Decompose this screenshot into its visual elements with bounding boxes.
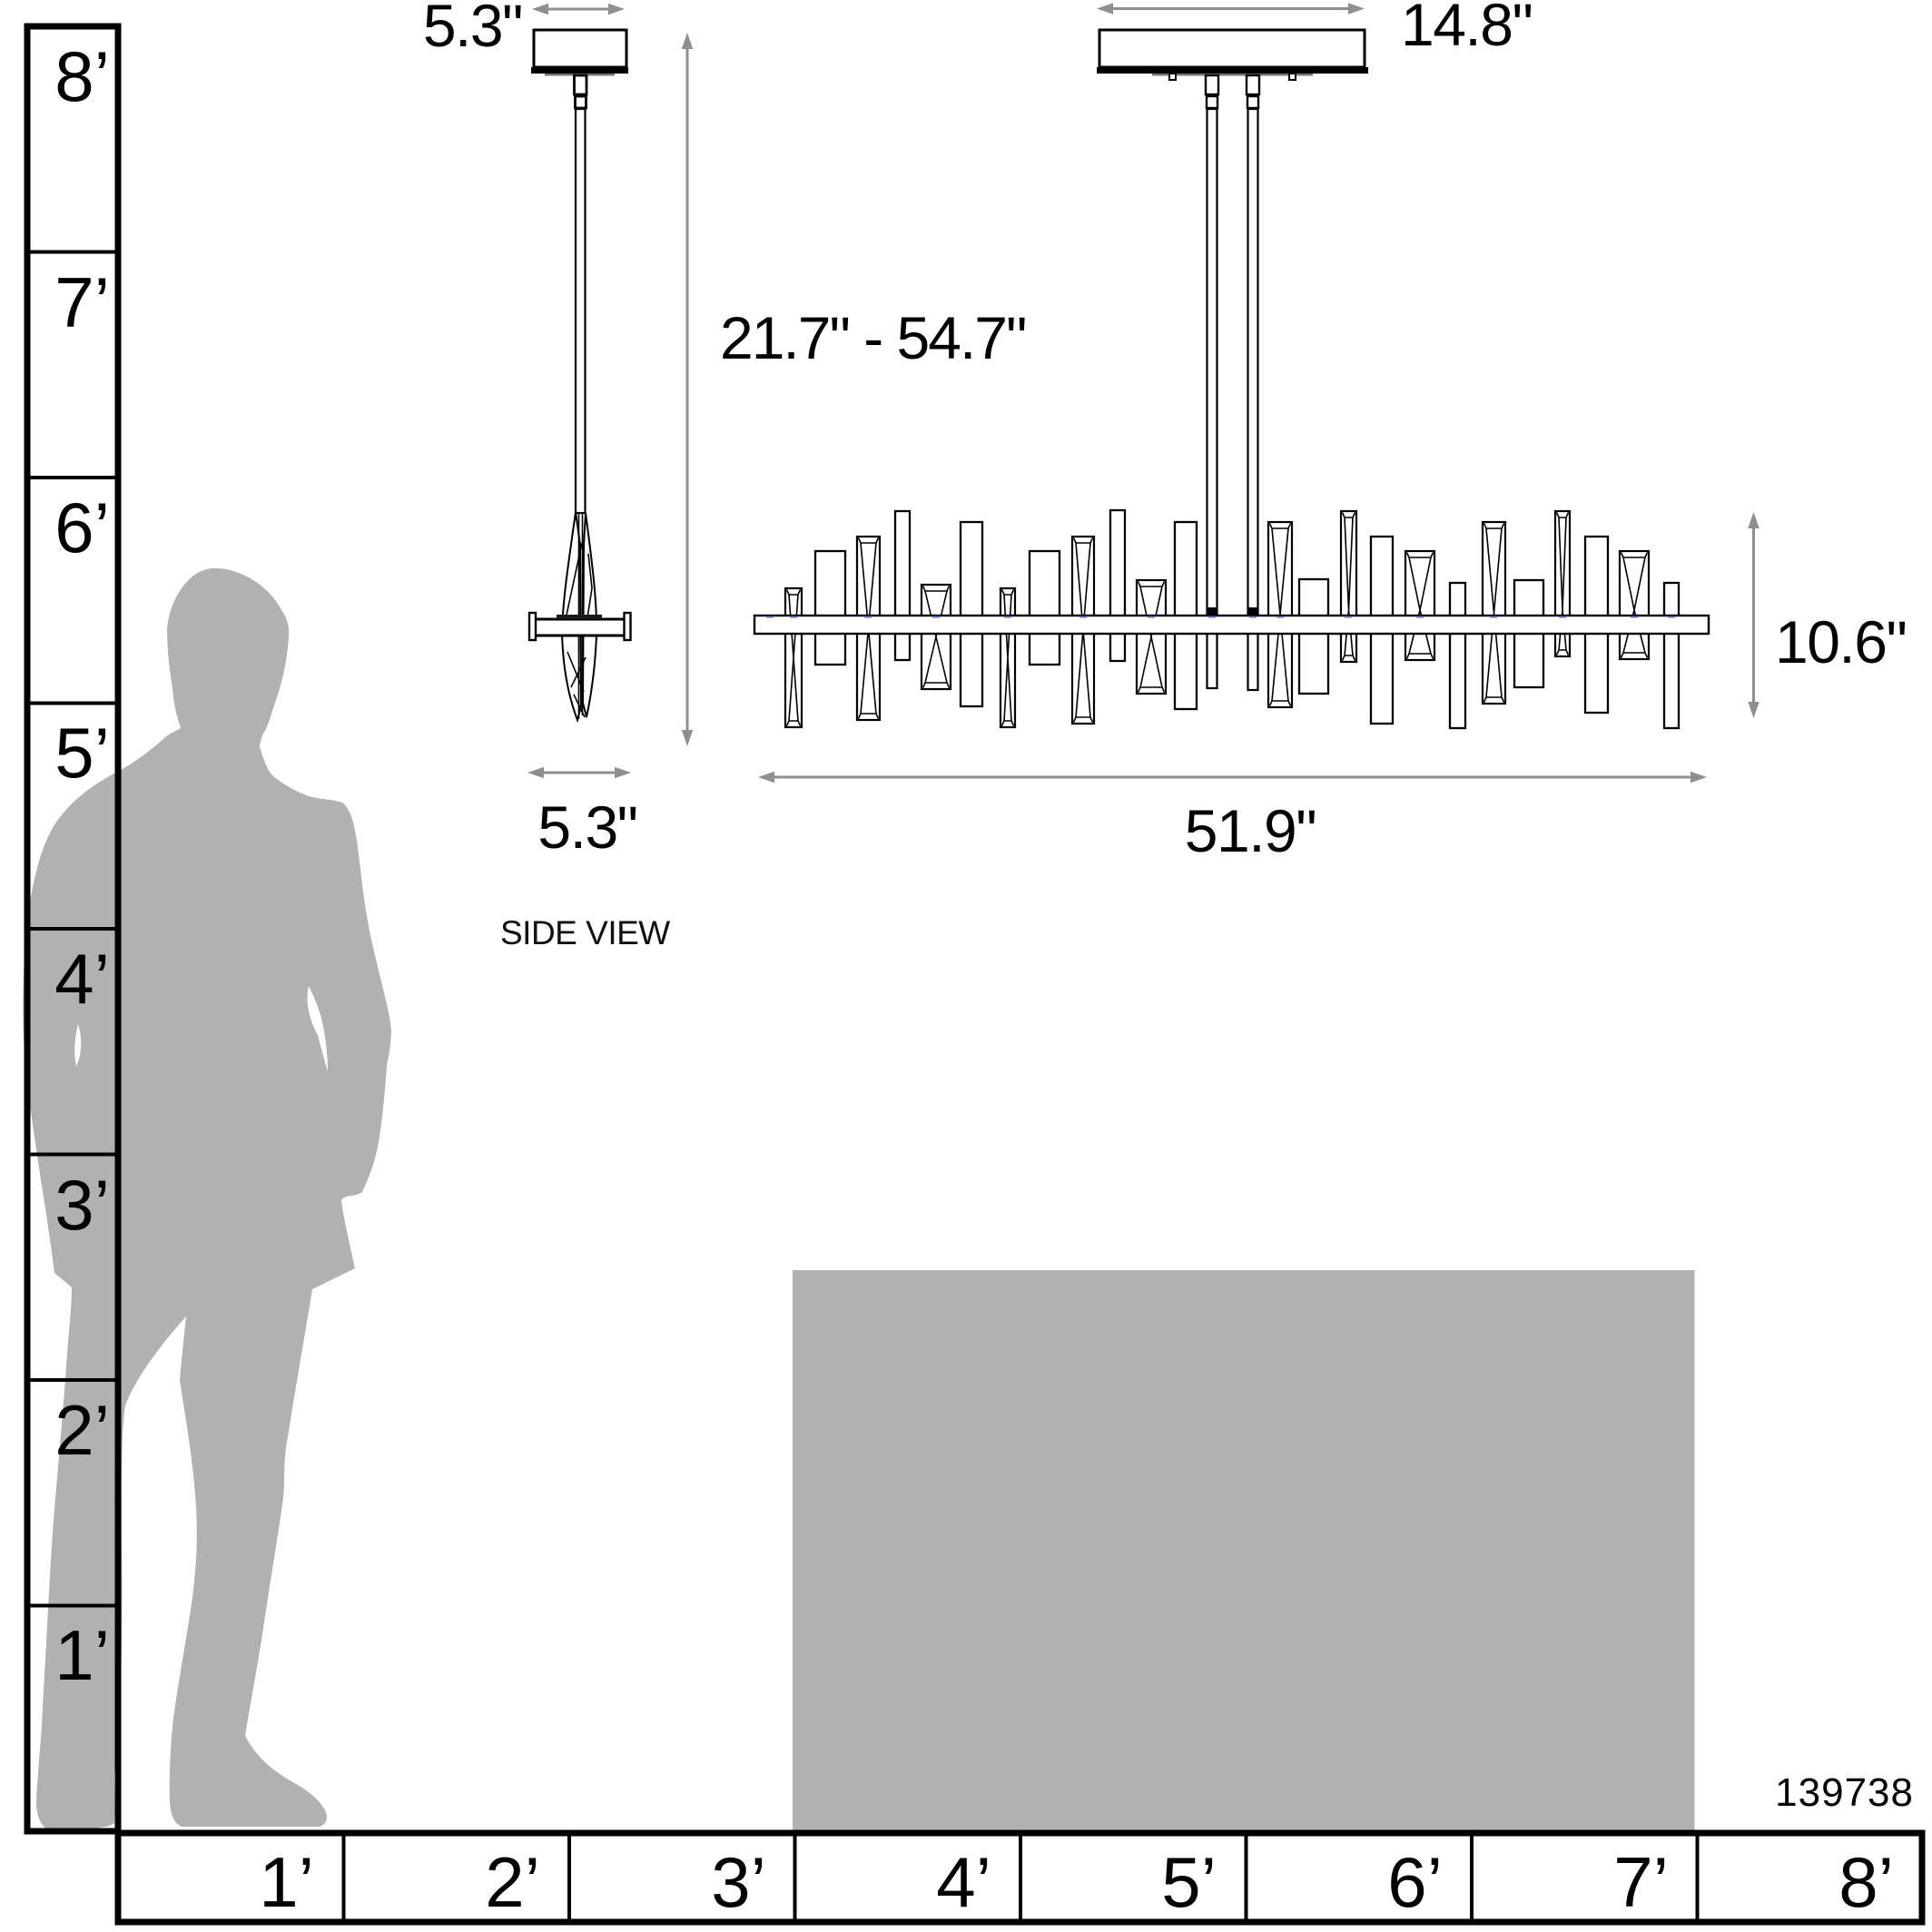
svg-text:5.3": 5.3" xyxy=(423,0,522,59)
svg-text:2’: 2’ xyxy=(54,1390,110,1470)
svg-text:4’: 4’ xyxy=(54,939,110,1019)
svg-text:1’: 1’ xyxy=(54,1615,110,1695)
svg-text:21.7" - 54.7": 21.7" - 54.7" xyxy=(720,304,1025,371)
svg-text:6’: 6’ xyxy=(54,488,110,567)
svg-text:7’: 7’ xyxy=(54,262,110,342)
svg-text:1’: 1’ xyxy=(259,1842,314,1922)
svg-text:5.3": 5.3" xyxy=(537,793,636,861)
svg-text:10.6": 10.6" xyxy=(1775,608,1906,675)
svg-text:SIDE VIEW: SIDE VIEW xyxy=(500,914,670,951)
svg-text:3’: 3’ xyxy=(711,1842,766,1922)
svg-text:8’: 8’ xyxy=(54,36,110,116)
svg-text:8’: 8’ xyxy=(1838,1842,1894,1922)
svg-text:14.8": 14.8" xyxy=(1401,0,1532,58)
svg-text:139738: 139738 xyxy=(1775,1770,1914,1815)
svg-text:51.9": 51.9" xyxy=(1185,797,1316,864)
svg-text:2’: 2’ xyxy=(485,1842,540,1922)
svg-text:3’: 3’ xyxy=(54,1165,110,1245)
svg-text:7’: 7’ xyxy=(1613,1842,1669,1922)
svg-text:5’: 5’ xyxy=(54,713,110,793)
svg-text:6’: 6’ xyxy=(1387,1842,1443,1922)
svg-text:5’: 5’ xyxy=(1161,1842,1217,1922)
svg-text:4’: 4’ xyxy=(936,1842,991,1922)
